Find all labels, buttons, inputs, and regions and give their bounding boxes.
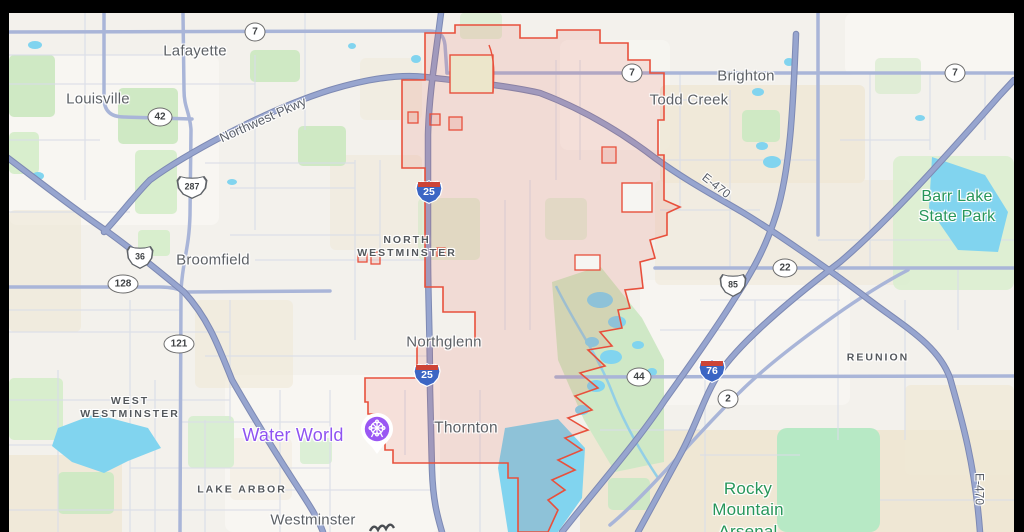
city-label-thornton[interactable]: Thornton (434, 418, 498, 437)
park-label-barr-lake[interactable]: Barr Lake State Park (919, 187, 996, 227)
city-label-broomfield[interactable]: Broomfield (176, 252, 250, 271)
city-label-louisville[interactable]: Louisville (66, 91, 130, 110)
route-shield-7: 7 (245, 23, 266, 42)
map-canvas[interactable]: Lafayette Louisville Brighton Todd Creek… (0, 0, 1024, 532)
boundary-hole-2 (622, 183, 652, 212)
district-line: NORTH (383, 234, 430, 246)
route-shield-44: 44 (627, 368, 652, 387)
map-graphics (0, 0, 1024, 532)
district-label-lake-arbor: LAKE ARBOR (197, 483, 287, 496)
district-label-north-westminster: NORTH WESTMINSTER (357, 234, 457, 260)
route-shield-128: 128 (108, 275, 139, 294)
rocky-mountain-arsenal-green (777, 428, 880, 532)
park-label-rocky-mountain-arsenal[interactable]: Rocky Mountain Arsenal (712, 478, 784, 532)
route-shield-121: 121 (164, 335, 195, 354)
city-label-lafayette[interactable]: Lafayette (163, 43, 227, 62)
route-shield-7: 7 (622, 64, 643, 83)
letterbox-bar-top (0, 0, 1024, 13)
letterbox-bar-right (1014, 0, 1024, 532)
district-line: WESTMINSTER (357, 247, 457, 259)
letterbox-bar-left (0, 0, 9, 532)
park-line: Rocky (724, 479, 772, 498)
route-shield-2: 2 (718, 390, 739, 409)
park-line: Arsenal (718, 522, 777, 532)
city-label-westminster[interactable]: Westminster (270, 512, 355, 531)
interstate-shield-number: 25 (415, 186, 443, 198)
road-label-e470-south: E-470 (972, 473, 987, 505)
route-shield-7: 7 (945, 64, 966, 83)
city-label-brighton[interactable]: Brighton (717, 68, 774, 87)
district-label-west-westminster: WEST WESTMINSTER (80, 395, 180, 421)
interstate-shield-number: 76 (698, 365, 726, 377)
route-shield-22: 22 (773, 259, 798, 278)
map-screenshot: Lafayette Louisville Brighton Todd Creek… (0, 0, 1024, 532)
city-label-todd-creek[interactable]: Todd Creek (650, 92, 729, 111)
boundary-hole-1 (450, 55, 493, 93)
park-line: Mountain (712, 500, 784, 519)
park-line: State Park (919, 208, 996, 225)
city-label-northglenn[interactable]: Northglenn (406, 334, 481, 353)
district-line: WESTMINSTER (80, 408, 180, 420)
route-44 (556, 376, 1014, 377)
district-line: WEST (111, 395, 149, 407)
boundary-hole-3 (575, 255, 600, 270)
route-shield-42: 42 (148, 108, 173, 127)
poi-label-water-world[interactable]: Water World (242, 424, 343, 447)
interstate-shield-number: 25 (413, 369, 441, 381)
district-label-reunion: REUNION (847, 351, 909, 364)
broomfield-east-road (186, 291, 330, 292)
park-line: Barr Lake (921, 188, 992, 205)
